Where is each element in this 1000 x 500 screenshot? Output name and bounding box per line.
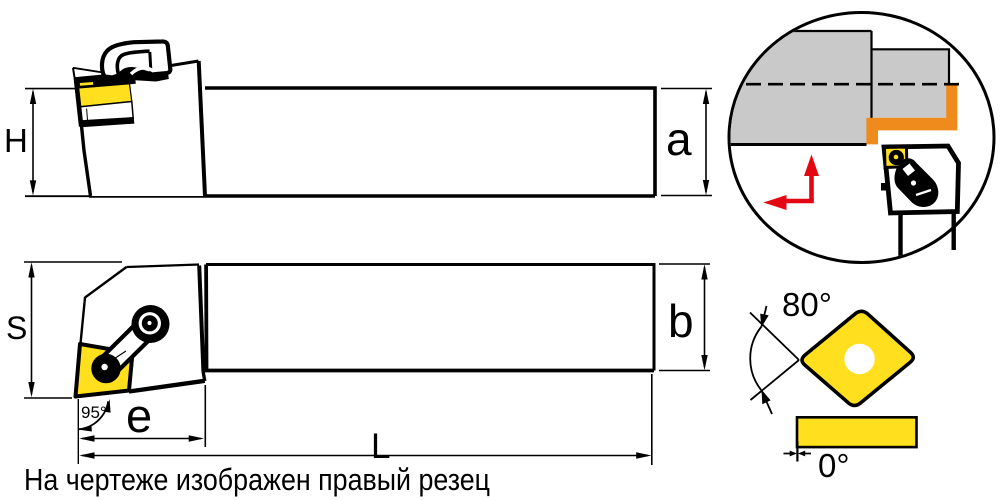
svg-text:b: b (668, 295, 694, 347)
svg-text:80°: 80° (782, 286, 832, 323)
svg-text:a: a (666, 113, 692, 165)
svg-text:0°: 0° (818, 447, 850, 484)
svg-text:L: L (371, 427, 390, 466)
svg-text:На чертеже изображен правый ре: На чертеже изображен правый резец (24, 463, 490, 497)
svg-text:S: S (6, 310, 27, 346)
svg-text:e: e (126, 389, 152, 442)
svg-text:95°: 95° (81, 403, 107, 422)
svg-text:H: H (4, 122, 28, 159)
